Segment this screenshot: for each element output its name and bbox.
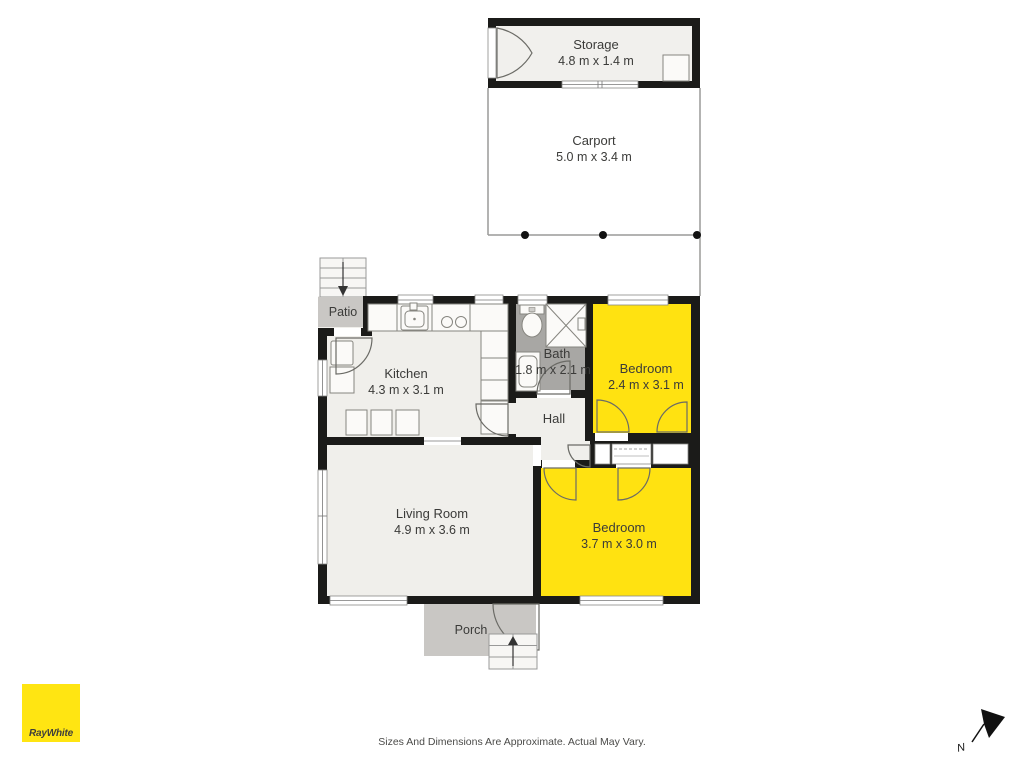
kitchen-counter [368,304,508,331]
porch-label: Porch [455,623,488,637]
patio-area: Patio [318,258,368,327]
kitchen-counter-right [481,331,508,400]
bedroomtop-door-opening [595,433,628,441]
carport-post-icon [693,231,701,239]
house: Patio [318,258,700,669]
bedroom-bottom-label: Bedroom [593,520,646,535]
kitchen-chair [331,341,353,365]
hall-living-opening [533,445,541,466]
porch-area: Porch [424,604,539,669]
carport: Carport 5.0 m x 3.4 m [488,88,701,296]
hall-label: Hall [543,411,566,426]
stove-burner-icon [456,317,467,328]
disclaimer-text: Sizes And Dimensions Are Approximate. Ac… [378,736,645,748]
kitchen-tap-icon [410,303,417,310]
patio-door-opening [334,328,361,336]
storage-wall-top [488,18,700,26]
storage-wall-right [692,18,700,88]
living-room-dims: 4.9 m x 3.6 m [394,523,470,537]
patio-label: Patio [329,305,358,319]
bedroom-top-label: Bedroom [620,361,673,376]
kitchen-fridge [481,401,508,434]
wall-right [691,296,700,604]
bedroom-bottom-dims: 3.7 m x 3.0 m [581,537,657,551]
north-arrow: N [956,709,1005,755]
floorplan-svg: Storage 4.8 m x 1.4 m Carport 5.0 m x 3.… [0,0,1024,768]
storage-dims: 4.8 m x 1.4 m [558,54,634,68]
living-room-label: Living Room [396,506,468,521]
stove-burner-icon [442,317,453,328]
kitchen-chair [396,410,419,435]
closet-box-wardrobe [612,444,651,464]
floorplan-page: Storage 4.8 m x 1.4 m Carport 5.0 m x 3.… [0,0,1024,768]
bath-dims: 1.8 m x 2.1 m [515,363,591,377]
wall-kitchen-bath [508,304,516,403]
bath-label: Bath [544,346,571,361]
bedroom-top-dims: 2.4 m x 3.1 m [608,378,684,392]
bedroombottom-door1-opening [542,460,575,468]
storage-label: Storage [573,37,619,52]
toilet-bowl-icon [522,313,542,337]
kitchen-dims: 4.3 m x 3.1 m [368,383,444,397]
branding-logo: RayWhite [22,684,80,742]
storage-unit: Storage 4.8 m x 1.4 m [488,18,700,88]
kitchen-label: Kitchen [384,366,427,381]
carport-post-icon [521,231,529,239]
kitchen-chair [346,410,367,435]
closet-box [595,444,610,464]
carport-dims: 5.0 m x 3.4 m [556,150,632,164]
closet-box [653,444,688,464]
kitchen-chair [371,410,392,435]
raywhite-logo-text: RayWhite [29,728,74,739]
north-label: N [956,741,966,754]
north-arrow-icon [981,709,1005,738]
carport-post-icon [599,231,607,239]
storage-door-opening [488,28,496,78]
carport-label: Carport [572,133,616,148]
storage-fixture [663,55,689,81]
